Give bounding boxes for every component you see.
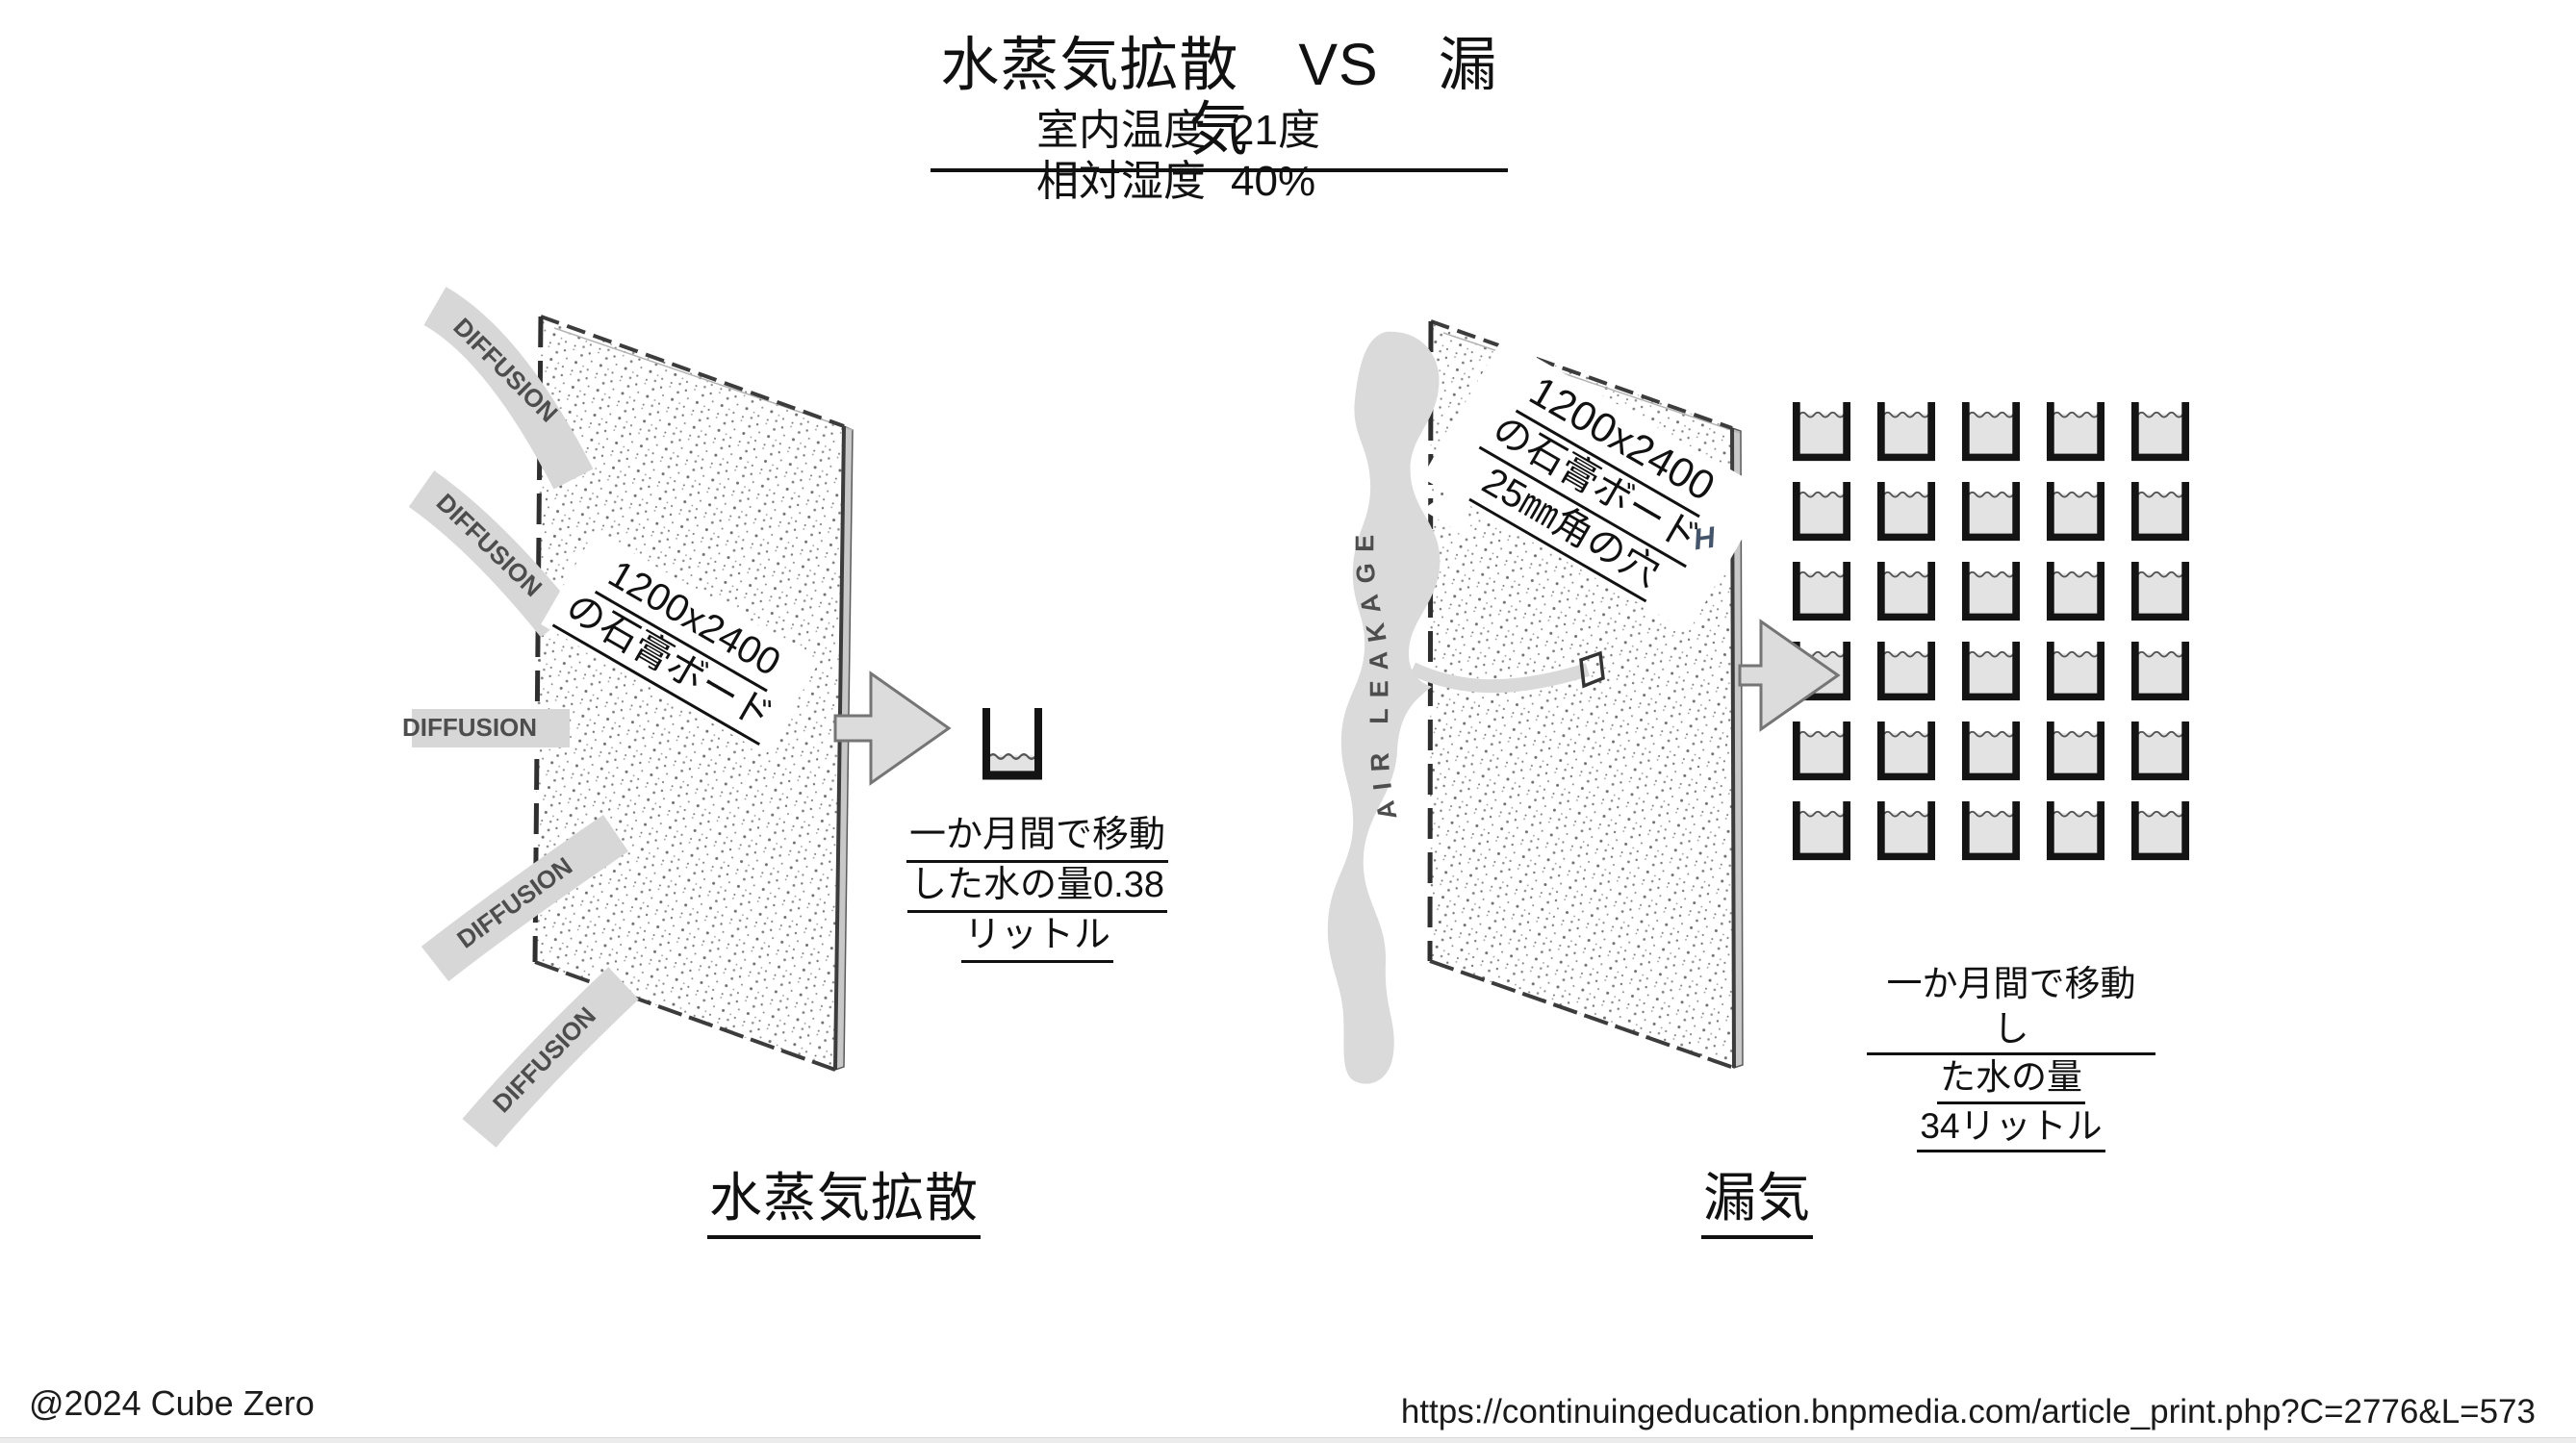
right-caption-text: 漏気 <box>1701 1154 1813 1239</box>
water-cup <box>1881 642 1931 697</box>
water-cup <box>1797 402 1847 458</box>
right-result-text: 一か月間で移動し た水の量 34リットル <box>1867 962 2155 1152</box>
water-cup-single <box>986 708 1038 776</box>
water-cup <box>2135 562 2185 618</box>
temperature-label: 室内温度 <box>1036 107 1206 154</box>
temperature-value: 21度 <box>1231 107 1320 154</box>
water-cup <box>1797 562 1847 618</box>
conditions: 室内温度21度 相対湿度40% <box>1036 106 1320 208</box>
right-result-line2: た水の量 <box>1937 1055 2085 1104</box>
left-result-line2: した水の量0.38 <box>907 863 1167 913</box>
water-cup <box>1881 721 1931 777</box>
water-cup <box>2051 642 2101 697</box>
water-cup <box>1966 562 2016 618</box>
left-flow-arrow <box>835 673 949 783</box>
diffusion-label-5: DIFFUSION <box>487 1001 601 1119</box>
left-caption: 水蒸気拡散 <box>707 1154 981 1239</box>
water-cup <box>1797 801 1847 857</box>
right-result-line1: 一か月間で移動し <box>1867 962 2155 1055</box>
left-result-text: 一か月間で移動 した水の量0.38 リットル <box>893 813 1182 963</box>
left-result-line1: 一か月間で移動 <box>906 813 1168 863</box>
water-cup <box>1797 482 1847 538</box>
water-cup <box>1881 801 1931 857</box>
water-cup <box>2135 642 2185 697</box>
water-cup <box>2051 721 2101 777</box>
right-flow-arrow <box>1740 621 1838 729</box>
water-cup <box>1797 721 1847 777</box>
water-cup <box>2051 801 2101 857</box>
right-caption: 漏気 <box>1701 1154 1813 1239</box>
humidity-value: 40% <box>1231 158 1315 205</box>
water-cup <box>2135 801 2185 857</box>
water-cup <box>2135 482 2185 538</box>
water-cup <box>1966 801 2016 857</box>
diffusion-label-2: DIFFUSION <box>431 488 548 602</box>
print-page: DIFFUSION DIFFUSION DIFFUSION DIFFUSION … <box>0 0 2576 1443</box>
water-cup <box>1881 482 1931 538</box>
water-cup <box>2051 482 2101 538</box>
right-board-left-edge <box>1430 321 1431 961</box>
cup-grid <box>1797 402 2185 857</box>
diffusion-label-3: DIFFUSION <box>402 713 537 742</box>
page-bottom-divider <box>0 1437 2576 1443</box>
source-url: https://continuingeducation.bnpmedia.com… <box>1401 1393 2536 1431</box>
right-result-line3: 34リットル <box>1917 1104 2104 1153</box>
water-cup <box>1966 482 2016 538</box>
water-cup <box>2135 402 2185 458</box>
condition-humidity: 相対湿度40% <box>1036 157 1320 208</box>
water-cup <box>2051 402 2101 458</box>
diagram-canvas: DIFFUSION DIFFUSION DIFFUSION DIFFUSION … <box>0 0 2576 1443</box>
water-cup <box>1881 402 1931 458</box>
water-cup <box>1966 721 2016 777</box>
water-cup <box>2135 721 2185 777</box>
condition-temperature: 室内温度21度 <box>1036 106 1320 157</box>
copyright-text: @2024 Cube Zero <box>29 1383 315 1424</box>
left-result-line3: リットル <box>961 913 1113 963</box>
water-cup <box>1881 562 1931 618</box>
water-cup <box>2051 562 2101 618</box>
humidity-label: 相対湿度 <box>1036 158 1206 205</box>
h-mark: H <box>1692 520 1718 558</box>
water-cup <box>1966 642 2016 697</box>
left-caption-text: 水蒸気拡散 <box>707 1154 981 1239</box>
water-cup <box>1966 402 2016 458</box>
